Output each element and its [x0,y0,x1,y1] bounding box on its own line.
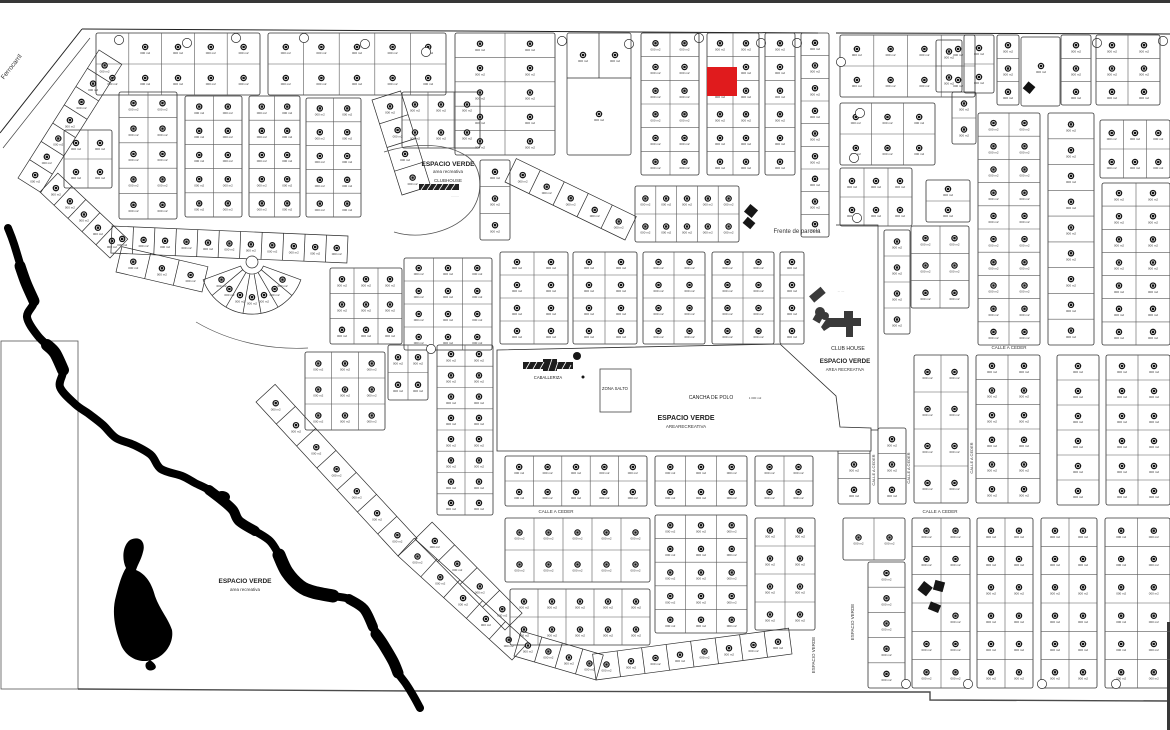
svg-text:000 m2: 000 m2 [385,283,395,287]
svg-text:000 m2: 000 m2 [414,318,424,322]
svg-text:000 m2: 000 m2 [650,662,660,666]
svg-text:000 m2: 000 m2 [584,289,594,293]
svg-text:000 m2: 000 m2 [988,197,998,201]
svg-text:000 m2: 000 m2 [584,668,594,672]
svg-text:000 m2: 000 m2 [628,496,638,500]
svg-text:000 m2: 000 m2 [882,152,892,156]
svg-text:000 m2: 000 m2 [787,289,797,293]
svg-text:AREARECREATIVA: AREARECREATIVA [666,424,706,429]
svg-text:000 m2: 000 m2 [173,51,183,55]
svg-text:000 m2: 000 m2 [1003,49,1013,53]
svg-text:000 m2: 000 m2 [921,563,931,567]
svg-text:000 m2: 000 m2 [543,569,553,573]
svg-text:000 m2: 000 m2 [512,289,522,293]
svg-text:000 m2: 000 m2 [436,137,446,141]
svg-text:000 m2: 000 m2 [1139,73,1149,77]
svg-text:000 m2: 000 m2 [887,469,897,473]
svg-text:000 m2: 000 m2 [727,577,737,581]
svg-text:000 m2: 000 m2 [1050,620,1060,624]
svg-text:000 m2: 000 m2 [921,535,931,539]
svg-text:000 m2: 000 m2 [1019,174,1029,178]
svg-text:000 m2: 000 m2 [490,203,500,207]
svg-text:000 m2: 000 m2 [1114,267,1124,271]
svg-text:000 m2: 000 m2 [194,111,204,115]
svg-text:000 m2: 000 m2 [1066,180,1076,184]
svg-text:000 m2: 000 m2 [1073,445,1083,449]
svg-text:000 m2: 000 m2 [696,577,706,581]
svg-text:000 m2: 000 m2 [810,92,820,96]
svg-text:000 m2: 000 m2 [949,270,959,274]
svg-text:000 m2: 000 m2 [1117,395,1127,399]
svg-text:000 m2: 000 m2 [887,443,897,447]
svg-text:000 m2: 000 m2 [988,151,998,155]
svg-text:000 m2: 000 m2 [988,290,998,294]
svg-text:area recreativa: area recreativa [230,587,261,592]
svg-text:CANCHA DE POLO: CANCHA DE POLO [689,395,734,401]
svg-text:000 m2: 000 m2 [400,158,410,162]
svg-text:000 m2: 000 m2 [474,380,484,384]
svg-text:000 m2: 000 m2 [446,507,456,511]
svg-text:CALLE A CEDER: CALLE A CEDER [922,509,958,514]
svg-text:000 m2: 000 m2 [922,450,932,454]
svg-text:CABALLERIZA: CABALLERIZA [534,375,563,380]
svg-text:ESPACIO VERDE: ESPACIO VERDE [219,578,273,585]
svg-text:000 m2: 000 m2 [1019,313,1029,317]
svg-text:000 m2: 000 m2 [1149,592,1159,596]
svg-text:000 m2: 000 m2 [650,166,660,170]
svg-text:000 m2: 000 m2 [787,266,797,270]
svg-text:000 m2: 000 m2 [920,270,930,274]
svg-text:000 m2: 000 m2 [944,56,954,60]
svg-text:000 m2: 000 m2 [474,401,484,405]
svg-text:000 m2: 000 m2 [949,242,959,246]
svg-text:000 m2: 000 m2 [950,620,960,624]
svg-text:000 m2: 000 m2 [614,226,624,230]
svg-text:000 m2: 000 m2 [575,606,585,610]
svg-text:000 m2: 000 m2 [631,634,641,638]
svg-text:000 m2: 000 m2 [490,176,500,180]
svg-text:000 m2: 000 m2 [1050,677,1060,681]
svg-text:000 m2: 000 m2 [247,301,257,305]
svg-text:000 m2: 000 m2 [352,82,362,86]
svg-text:000 m2: 000 m2 [665,496,675,500]
svg-text:000 m2: 000 m2 [315,136,325,140]
svg-text:000 m2: 000 m2 [773,646,783,650]
svg-text:000 m2: 000 m2 [257,135,267,139]
svg-text:000 m2: 000 m2 [474,507,484,511]
svg-text:000 m2: 000 m2 [51,192,61,196]
svg-text:000 m2: 000 m2 [753,335,763,339]
svg-text:000 m2: 000 m2 [764,496,774,500]
svg-text:000 m2: 000 m2 [699,656,709,660]
svg-text:000 m2: 000 m2 [764,471,774,475]
svg-text:000 m2: 000 m2 [871,214,881,218]
svg-text:000 m2: 000 m2 [443,318,453,322]
svg-text:000 m2: 000 m2 [665,553,675,557]
svg-text:000 m2: 000 m2 [361,283,371,287]
svg-text:000 m2: 000 m2 [458,602,468,606]
svg-text:000 m2: 000 m2 [446,422,456,426]
svg-text:000 m2: 000 m2 [412,561,422,565]
svg-text:000 m2: 000 m2 [547,634,557,638]
svg-text:000 m2: 000 m2 [895,214,905,218]
svg-text:000 m2: 000 m2 [181,246,191,250]
svg-text:CLUB HOUSE: CLUB HOUSE [831,346,865,352]
svg-text:000 m2: 000 m2 [140,51,150,55]
svg-text:000 m2: 000 m2 [436,109,446,113]
svg-text:000 m2: 000 m2 [810,138,820,142]
svg-text:000 m2: 000 m2 [599,471,609,475]
svg-text:000 m2: 000 m2 [679,142,689,146]
svg-text:000 m2: 000 m2 [564,662,574,666]
svg-text:000 m2: 000 m2 [423,82,433,86]
svg-text:000 m2: 000 m2 [313,420,323,424]
svg-text:000 m2: 000 m2 [518,179,528,183]
svg-text:000 m2: 000 m2 [157,107,167,111]
svg-text:000 m2: 000 m2 [650,48,660,52]
svg-text:000 m2: 000 m2 [1066,283,1076,287]
svg-text:000 m2: 000 m2 [584,312,594,316]
svg-text:000 m2: 000 m2 [157,133,167,137]
svg-text:000 m2: 000 m2 [892,272,902,276]
svg-text:000 m2: 000 m2 [224,293,234,297]
svg-text:000 m2: 000 m2 [525,146,535,150]
svg-text:000 m2: 000 m2 [1148,220,1158,224]
svg-text:000 m2: 000 m2 [1148,197,1158,201]
svg-text:000 m2: 000 m2 [988,127,998,131]
svg-text:000 m2: 000 m2 [128,184,138,188]
svg-text:000 m2: 000 m2 [367,420,377,424]
svg-text:000 m2: 000 m2 [919,53,929,57]
svg-text:000 m2: 000 m2 [1019,127,1029,131]
svg-text:000 m2: 000 m2 [684,312,694,316]
svg-text:000 m2: 000 m2 [715,48,725,52]
svg-text:000 m2: 000 m2 [289,250,299,254]
svg-text:000 m2: 000 m2 [881,577,891,581]
svg-text:000 m2: 000 m2 [206,51,216,55]
svg-text:AREA RECREATIVA: AREA RECREATIVA [826,367,865,372]
svg-text:000 m2: 000 m2 [724,203,734,207]
svg-text:000 m2: 000 m2 [446,465,456,469]
svg-text:000 m2: 000 m2 [316,51,326,55]
svg-text:000 m2: 000 m2 [315,184,325,188]
svg-text:000 m2: 000 m2 [944,82,954,86]
svg-text:000 m2: 000 m2 [696,624,706,628]
svg-text:000 m2: 000 m2 [741,71,751,75]
svg-text:000 m2: 000 m2 [408,182,418,186]
svg-text:000 m2: 000 m2 [1019,290,1029,294]
svg-text:000 m2: 000 m2 [315,208,325,212]
svg-text:000 m2: 000 m2 [282,159,292,163]
svg-text:000 m2: 000 m2 [631,606,641,610]
svg-text:000 m2: 000 m2 [313,368,323,372]
svg-text:000 m2: 000 m2 [342,208,352,212]
svg-text:000 m2: 000 m2 [950,648,960,652]
svg-text:000 m2: 000 m2 [892,298,902,302]
svg-text:000 m2: 000 m2 [71,176,81,180]
svg-text:000 m2: 000 m2 [342,184,352,188]
svg-text:000 m2: 000 m2 [388,82,398,86]
svg-text:000 m2: 000 m2 [892,324,902,328]
svg-text:000 m2: 000 m2 [337,283,347,287]
svg-text:000 m2: 000 m2 [194,135,204,139]
svg-text:000 m2: 000 m2 [1078,677,1088,681]
svg-text:000 m2: 000 m2 [594,118,604,122]
svg-text:000 m2: 000 m2 [1148,244,1158,248]
svg-text:000 m2: 000 m2 [514,537,524,541]
svg-text:000 m2: 000 m2 [661,203,671,207]
svg-text:000 m2: 000 m2 [810,115,820,119]
svg-text:000 m2: 000 m2 [1073,495,1083,499]
svg-text:000 m2: 000 m2 [475,72,485,76]
svg-text:000 m2: 000 m2 [950,677,960,681]
svg-text:000 m2: 000 m2 [1003,73,1013,77]
svg-text:000 m2: 000 m2 [601,669,611,673]
svg-text:000 m2: 000 m2 [1078,620,1088,624]
svg-text:000 m2: 000 m2 [1073,370,1083,374]
svg-text:000 m2: 000 m2 [1117,445,1127,449]
svg-text:000 m2: 000 m2 [741,119,751,123]
svg-text:000 m2: 000 m2 [1107,49,1117,53]
svg-text:000 m2: 000 m2 [650,71,660,75]
svg-text:000 m2: 000 m2 [572,537,582,541]
svg-text:000 m2: 000 m2 [128,266,138,270]
svg-text:000 m2: 000 m2 [765,563,775,567]
svg-text:000 m2: 000 m2 [53,143,63,147]
svg-text:000 m2: 000 m2 [474,443,484,447]
svg-text:000 m2: 000 m2 [987,444,997,448]
svg-text:ESPACIO VERDE: ESPACIO VERDE [422,161,476,168]
svg-text:000 m2: 000 m2 [512,266,522,270]
svg-text:000 m2: 000 m2 [853,542,863,546]
svg-text:000 m2: 000 m2 [727,600,737,604]
svg-text:area recreativa: area recreativa [433,169,464,174]
svg-text:000 m2: 000 m2 [1078,563,1088,567]
svg-text:000 m2: 000 m2 [881,678,891,682]
svg-text:000 m2: 000 m2 [665,530,675,534]
svg-text:000 m2: 000 m2 [722,266,732,270]
svg-text:000 m2: 000 m2 [446,358,456,362]
svg-text:000 m2: 000 m2 [1014,535,1024,539]
svg-text:000 m2: 000 m2 [490,229,500,233]
svg-text:000 m2: 000 m2 [675,659,685,663]
svg-text:000 m2: 000 m2 [626,665,636,669]
svg-text:000 m2: 000 m2 [1066,206,1076,210]
svg-text:000 m2: 000 m2 [504,644,514,648]
svg-text:000 m2: 000 m2 [988,313,998,317]
svg-text:000 m2: 000 m2 [413,389,423,393]
svg-text:000 m2: 000 m2 [1073,420,1083,424]
svg-text:000 m2: 000 m2 [546,312,556,316]
svg-text:000 m2: 000 m2 [727,624,737,628]
svg-text:000 m2: 000 m2 [1066,129,1076,133]
svg-text:000 m2: 000 m2 [267,250,277,254]
svg-text:.... ....: .... .... [451,194,459,198]
svg-text:000 m2: 000 m2 [1117,495,1127,499]
svg-text:000 m2: 000 m2 [281,51,291,55]
svg-text:000 m2: 000 m2 [497,613,507,617]
svg-text:Frente de parcela: Frente de parcela [773,229,821,235]
svg-text:000 m2: 000 m2 [239,51,249,55]
svg-text:000 m2: 000 m2 [1116,620,1126,624]
svg-text:000 m2: 000 m2 [599,496,609,500]
svg-text:000 m2: 000 m2 [1114,244,1124,248]
svg-text:000 m2: 000 m2 [793,471,803,475]
svg-text:000 m2: 000 m2 [95,176,105,180]
svg-text:000 m2: 000 m2 [1073,470,1083,474]
svg-text:000 m2: 000 m2 [543,471,553,475]
svg-text:000 m2: 000 m2 [1149,445,1159,449]
svg-text:000 m2: 000 m2 [684,289,694,293]
svg-text:000 m2: 000 m2 [920,297,930,301]
svg-text:000 m2: 000 m2 [340,368,350,372]
svg-text:000 m2: 000 m2 [443,272,453,276]
svg-text:000 m2: 000 m2 [628,471,638,475]
svg-text:000 m2: 000 m2 [572,569,582,573]
svg-text:000 m2: 000 m2 [523,650,533,654]
svg-text:000 m2: 000 m2 [1149,470,1159,474]
svg-text:000 m2: 000 m2 [881,628,891,632]
svg-text:000 m2: 000 m2 [696,471,706,475]
svg-text:000 m2: 000 m2 [1014,620,1024,624]
svg-text:000 m2: 000 m2 [223,159,233,163]
svg-text:000 m2: 000 m2 [922,376,932,380]
svg-text:000 m2: 000 m2 [949,376,959,380]
svg-text:000 m2: 000 m2 [393,134,403,138]
svg-text:000 m2: 000 m2 [959,134,969,138]
svg-text:000 m2: 000 m2 [987,469,997,473]
svg-text:000 m2: 000 m2 [140,82,150,86]
svg-text:000 m2: 000 m2 [413,361,423,365]
svg-text:000 m2: 000 m2 [393,361,403,365]
svg-text:000 m2: 000 m2 [525,121,535,125]
svg-text:000 m2: 000 m2 [590,214,600,218]
svg-text:000 m2: 000 m2 [988,267,998,271]
svg-text:000 m2: 000 m2 [986,677,996,681]
svg-text:000 m2: 000 m2 [679,95,689,99]
svg-text:000 m2: 000 m2 [388,51,398,55]
svg-text:000 m2: 000 m2 [42,161,52,165]
svg-text:000 m2: 000 m2 [1148,267,1158,271]
svg-text:000 m2: 000 m2 [1114,313,1124,317]
svg-text:000 m2: 000 m2 [71,147,81,151]
svg-text:000 m2: 000 m2 [474,358,484,362]
svg-text:000 m2: 000 m2 [810,183,820,187]
svg-text:000 m2: 000 m2 [679,48,689,52]
svg-text:000 m2: 000 m2 [277,284,287,288]
svg-text:000 m2: 000 m2 [1149,370,1159,374]
svg-text:000 m2: 000 m2 [715,119,725,123]
svg-text:000 m2: 000 m2 [852,84,862,88]
svg-text:000 m2: 000 m2 [566,203,576,207]
svg-text:000 m2: 000 m2 [475,591,485,595]
svg-text:000 m2: 000 m2 [1149,535,1159,539]
svg-text:000 m2: 000 m2 [1071,73,1081,77]
svg-text:000 m2: 000 m2 [315,113,325,117]
svg-text:000 m2: 000 m2 [1066,335,1076,339]
svg-text:000 m2: 000 m2 [603,634,613,638]
svg-text:000 m2: 000 m2 [959,108,969,112]
svg-text:ESPACIO VERDE: ESPACIO VERDE [657,415,714,422]
svg-text:000 m2: 000 m2 [653,289,663,293]
svg-text:000 m2: 000 m2 [1066,154,1076,158]
svg-text:000 m2: 000 m2 [1116,648,1126,652]
svg-text:000 m2: 000 m2 [793,496,803,500]
svg-text:000 m2: 000 m2 [342,113,352,117]
svg-text:000 m2: 000 m2 [575,634,585,638]
svg-text:ESPACIO VERDE: ESPACIO VERDE [820,358,870,365]
svg-text:000 m2: 000 m2 [616,312,626,316]
svg-text:000 m2: 000 m2 [481,623,491,627]
svg-text:000 m2: 000 m2 [352,51,362,55]
svg-text:000 m2: 000 m2 [311,451,321,455]
svg-text:000 m2: 000 m2 [385,309,395,313]
svg-text:000 m2: 000 m2 [206,82,216,86]
svg-text:000 m2: 000 m2 [653,266,663,270]
svg-text:000 m2: 000 m2 [949,297,959,301]
svg-text:000 m2: 000 m2 [696,530,706,534]
svg-text:000 m2: 000 m2 [76,106,86,110]
svg-text:000 m2: 000 m2 [525,48,535,52]
svg-text:000 m2: 000 m2 [392,539,402,543]
svg-text:000 m2: 000 m2 [616,289,626,293]
svg-text:000 m2: 000 m2 [810,70,820,74]
svg-text:000 m2: 000 m2 [462,109,472,113]
svg-text:000 m2: 000 m2 [987,493,997,497]
svg-text:000 m2: 000 m2 [139,244,149,248]
svg-text:000 m2: 000 m2 [1149,495,1159,499]
svg-text:000 m2: 000 m2 [30,179,40,183]
svg-text:000 m2: 000 m2 [235,299,245,303]
svg-text:000 m2: 000 m2 [640,203,650,207]
svg-text:000 m2: 000 m2 [1139,96,1149,100]
svg-text:000 m2: 000 m2 [332,252,342,256]
svg-text:000 m2: 000 m2 [223,135,233,139]
svg-text:000 m2: 000 m2 [943,214,953,218]
svg-text:000 m2: 000 m2 [474,486,484,490]
svg-text:000 m2: 000 m2 [270,293,280,297]
svg-text:000 m2: 000 m2 [810,47,820,51]
svg-text:000 m2: 000 m2 [95,147,105,151]
svg-text:000 m2: 000 m2 [679,119,689,123]
svg-text:000 m2: 000 m2 [882,121,892,125]
svg-text:000 m2: 000 m2 [986,535,996,539]
svg-text:000 m2: 000 m2 [640,231,650,235]
svg-text:000 m2: 000 m2 [881,653,891,657]
svg-text:000 m2: 000 m2 [753,266,763,270]
svg-text:000 m2: 000 m2 [986,620,996,624]
svg-text:000 m2: 000 m2 [259,299,269,303]
svg-text:000 m2: 000 m2 [849,494,859,498]
svg-text:000 m2: 000 m2 [1050,648,1060,652]
svg-text:CLUBHOUSE: CLUBHOUSE [434,178,462,183]
svg-text:000 m2: 000 m2 [462,137,472,141]
svg-text:000 m2: 000 m2 [282,183,292,187]
svg-text:000 m2: 000 m2 [884,542,894,546]
svg-text:000 m2: 000 m2 [1071,96,1081,100]
svg-text:000 m2: 000 m2 [414,295,424,299]
svg-text:000 m2: 000 m2 [727,553,737,557]
svg-text:000 m2: 000 m2 [282,135,292,139]
svg-text:000 m2: 000 m2 [1149,677,1159,681]
svg-text:000 m2: 000 m2 [340,394,350,398]
svg-text:000 m2: 000 m2 [1019,267,1029,271]
svg-text:000 m2: 000 m2 [281,82,291,86]
svg-text:000 m2: 000 m2 [1149,563,1159,567]
svg-text:000 m2: 000 m2 [571,496,581,500]
svg-text:000 m2: 000 m2 [715,166,725,170]
svg-text:000 m2: 000 m2 [584,335,594,339]
